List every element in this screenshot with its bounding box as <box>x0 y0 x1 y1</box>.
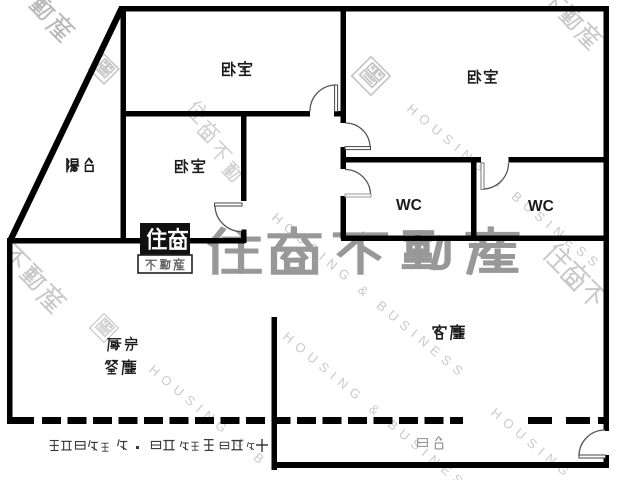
svg-text:WC: WC <box>396 197 422 214</box>
svg-text:WC: WC <box>528 198 554 215</box>
